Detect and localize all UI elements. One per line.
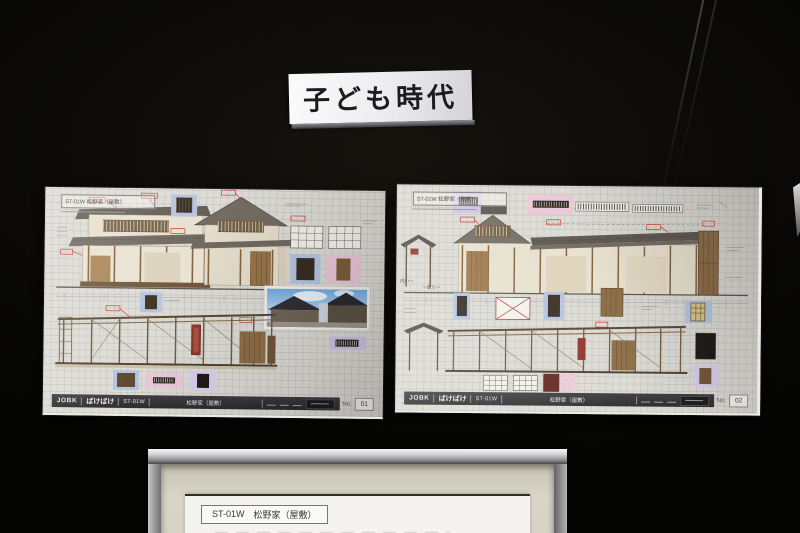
sign-title: 子ども時代: [303, 75, 459, 118]
frame-mat: ST-01W 松野家（屋敷）: [161, 464, 554, 533]
divider: [261, 399, 262, 407]
set-name: 松野家（屋敷）: [506, 395, 632, 404]
divider: [149, 398, 150, 406]
divider: [636, 396, 637, 404]
front-label: 向い～: [400, 277, 414, 283]
frame-top-rail: [148, 449, 567, 464]
sheet-number: 02: [729, 394, 748, 407]
program-logo: ばけばけ: [86, 396, 114, 406]
org-label: JOBK: [409, 395, 430, 402]
drawing-board-2: 向い～ ～通り～: [395, 184, 762, 415]
detail-swatches-bottom: [113, 370, 215, 391]
reference-photo-inset: [264, 286, 371, 331]
divider: [434, 394, 435, 402]
framed-floorplan: ST-01W 松野家（屋敷）: [148, 449, 567, 533]
sheet-header-box: ST-01W 松野家（屋敷）: [413, 192, 507, 207]
divider: [81, 397, 82, 405]
designer-signature: [279, 404, 288, 405]
document-set-code: ST-01W: [212, 509, 245, 519]
divider: [501, 395, 502, 403]
set-code: ST-01W: [476, 396, 498, 402]
set-name: 松野家（屋敷）: [154, 398, 258, 407]
street-label: ～通り～: [422, 284, 441, 291]
bottom-elevation-drawing: [55, 312, 278, 370]
sheet-header-text: ST-01W 松野家（屋敷）: [417, 195, 477, 204]
set-code: ST-01W: [123, 398, 145, 404]
elevation-drawing-sheet-2: 向い～ ～通り～: [395, 184, 759, 413]
adjacent-panel-edge: [793, 183, 800, 237]
sign-face: 子ども時代: [288, 70, 472, 124]
designer-signature: [654, 401, 663, 402]
frame-left-rail: [148, 464, 161, 533]
section-sign: 子ども時代: [288, 70, 472, 124]
detail-swatches-bottom: [483, 331, 720, 393]
sheet-number: 01: [355, 398, 374, 411]
sheet-header-box: ST-01W 松野家（屋敷）: [61, 194, 155, 209]
drawing-board-1: ～通り～: [43, 187, 386, 419]
date-box: [305, 399, 334, 409]
designer-signature: [292, 404, 301, 405]
bottom-elevation-drawing: [403, 322, 687, 372]
sheet-header-text: ST-01W 松野家（屋敷）: [65, 197, 125, 206]
title-block-bar: JOBK ばけばけ ST-01W 松野家（屋敷）: [404, 391, 714, 407]
exhibition-photo: 子ども時代: [0, 0, 800, 533]
sheet-no-label: No.: [717, 398, 726, 404]
divider: [118, 397, 119, 405]
document-set-name: 松野家（屋敷）: [254, 508, 317, 521]
frame-right-rail: [554, 464, 567, 533]
date-box: [680, 395, 709, 405]
document-label-box: ST-01W 松野家（屋敷）: [201, 505, 328, 524]
designer-signature: [641, 401, 650, 402]
elevation-drawing-sheet-1: ～通り～: [43, 187, 386, 417]
org-label: JOBK: [57, 397, 78, 404]
barcode-swatch: [329, 336, 365, 349]
document-sheet: ST-01W 松野家（屋敷）: [185, 494, 530, 533]
program-logo: ばけばけ: [439, 393, 467, 403]
sheet-no-label: No.: [342, 401, 351, 407]
designer-signature: [667, 401, 676, 402]
divider: [471, 395, 472, 403]
top-elevation-drawing: [400, 205, 749, 306]
designer-signature: [266, 404, 275, 405]
